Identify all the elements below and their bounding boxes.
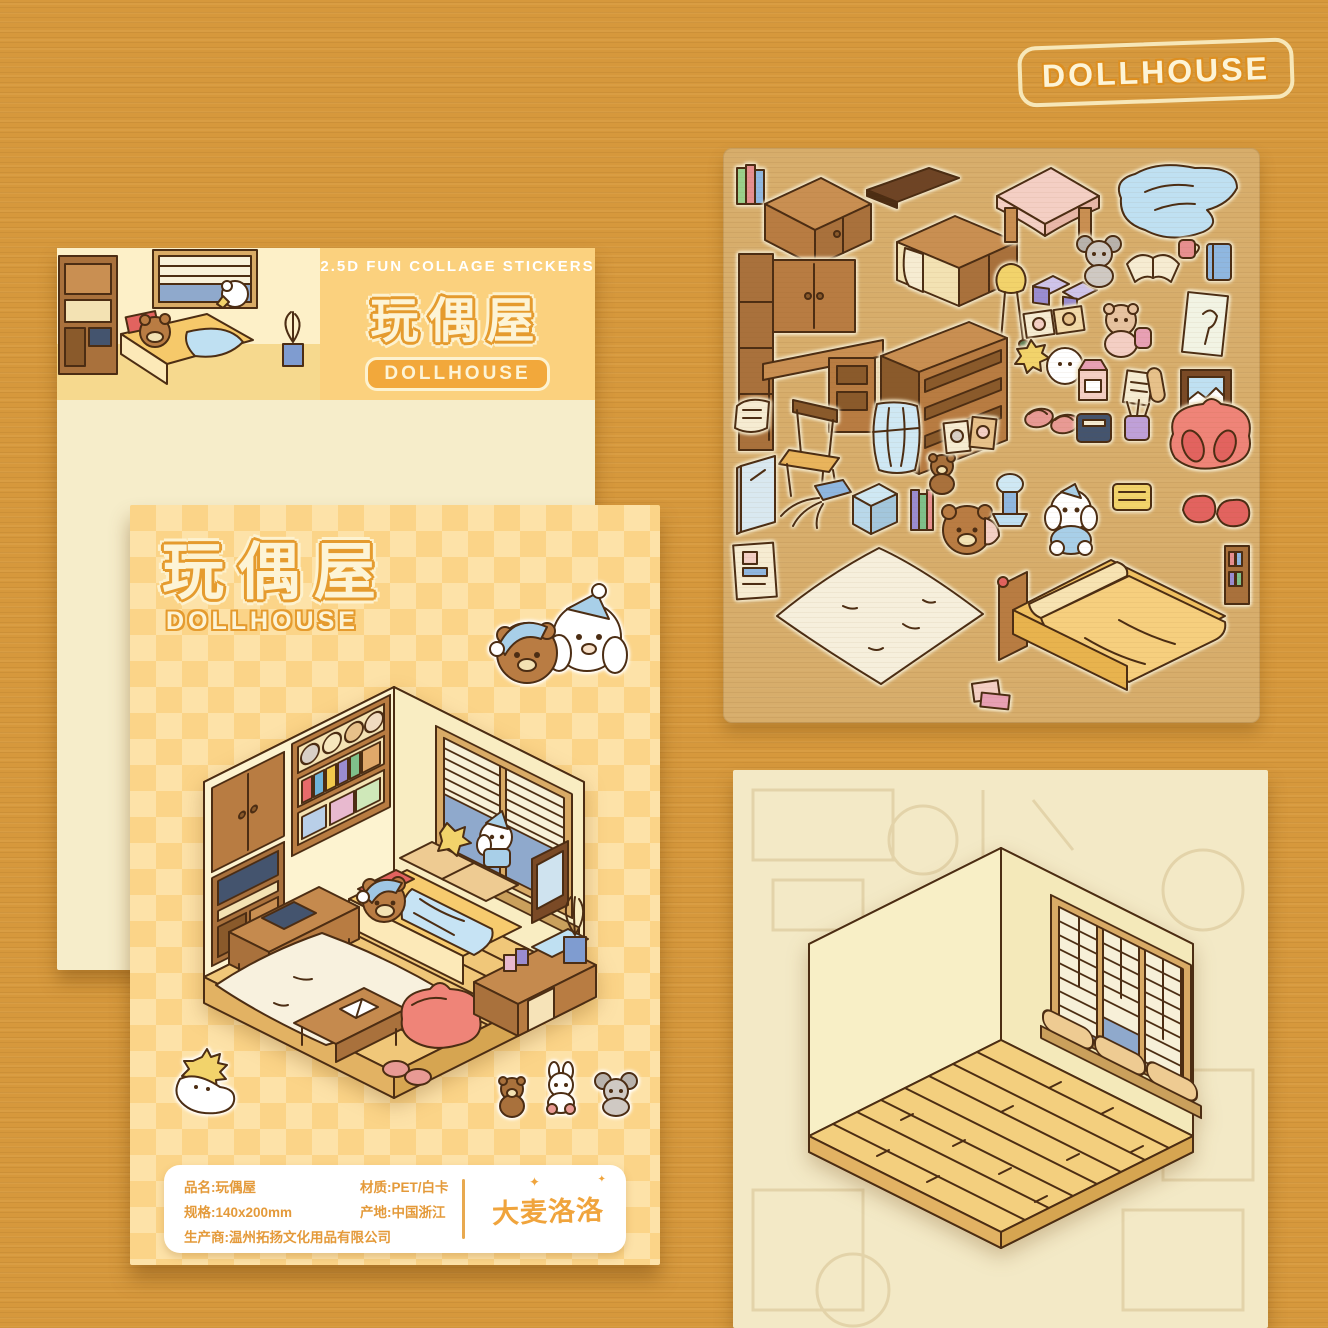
mini-mouse-sticker-icon — [592, 1069, 640, 1117]
band-text-block: 2.5D FUN COLLAGE STICKERS 玩偶屋 DOLLHOUSE — [320, 248, 595, 400]
band-room-illustration-icon — [57, 248, 320, 400]
sticker-icecream-poster-icon — [1181, 288, 1231, 360]
brand-logo-wrap: 大麦洛洛 — [476, 1165, 620, 1253]
sticker-photo-frames-icon — [941, 414, 999, 458]
fluffy-star-sticker-icon — [166, 1039, 250, 1119]
info-manufacturer: 生产商:温州拓扬文化用品有限公司 — [184, 1226, 391, 1251]
sticker-name-plate-icon — [1073, 408, 1115, 448]
back-card-header-band: 2.5D FUN COLLAGE STICKERS 玩偶屋 DOLLHOUSE — [57, 248, 595, 400]
sticker-fluffy-rug-icon — [773, 544, 987, 688]
band-tagline: 2.5D FUN COLLAGE STICKERS — [320, 258, 594, 275]
sticker-pink-books-icon — [969, 676, 1015, 714]
empty-room-card — [733, 770, 1268, 1328]
sticker-snack-plate-icon — [1109, 476, 1155, 516]
sticker-red-pillows-icon — [1179, 488, 1255, 536]
sticker-paper-sheet-icon — [729, 394, 775, 438]
info-origin: 产地:中国浙江 — [360, 1201, 449, 1226]
product-info-box: 品名:玩偶屋 规格:140x200mm 生产商:温州拓扬文化用品有限公司 材质:… — [164, 1165, 626, 1253]
brand-logo: 大麦洛洛 — [491, 1188, 604, 1231]
sticker-plant-pot-icon — [775, 476, 855, 536]
sticker-bed-icon — [989, 542, 1233, 706]
info-material: 材质:PET/白卡 — [360, 1176, 449, 1201]
mini-teddy-sticker-icon — [492, 1073, 532, 1121]
sticker-blue-book-icon — [1201, 240, 1237, 286]
product-photo-canvas: DOLLHOUSE — [0, 0, 1328, 1328]
info-divider — [462, 1179, 465, 1239]
dollhouse-logo: DOLLHOUSE — [1017, 37, 1295, 108]
front-card-subtitle: DOLLHOUSE — [166, 607, 359, 636]
sticker-blue-curtain-icon — [865, 398, 927, 478]
sticker-pencil-cup-icon — [1117, 398, 1157, 446]
sticker-bear-backpack-icon — [1091, 298, 1157, 360]
front-card: 玩偶屋 DOLLHOUSE — [130, 505, 660, 1265]
sticker-sheet — [723, 148, 1260, 723]
empty-room-illustration — [761, 808, 1241, 1298]
sticker-koala-plush-icon — [1075, 232, 1123, 290]
band-dollhouse-badge: DOLLHOUSE — [365, 357, 549, 391]
sticker-beanbag-chair-icon — [1159, 394, 1255, 490]
sticker-mini-shelf-icon — [1221, 542, 1253, 608]
front-card-title: 玩偶屋 — [162, 521, 390, 611]
info-right-column: 材质:PET/白卡 产地:中国浙江 — [360, 1176, 449, 1226]
band-title: 玩偶屋 — [370, 281, 544, 351]
sticker-terrarium-icon — [845, 476, 903, 542]
sticker-shelf-plank-icon — [863, 164, 963, 210]
mini-rabbit-sticker-icon — [540, 1061, 582, 1115]
sticker-table-lamp-icon — [985, 470, 1035, 530]
